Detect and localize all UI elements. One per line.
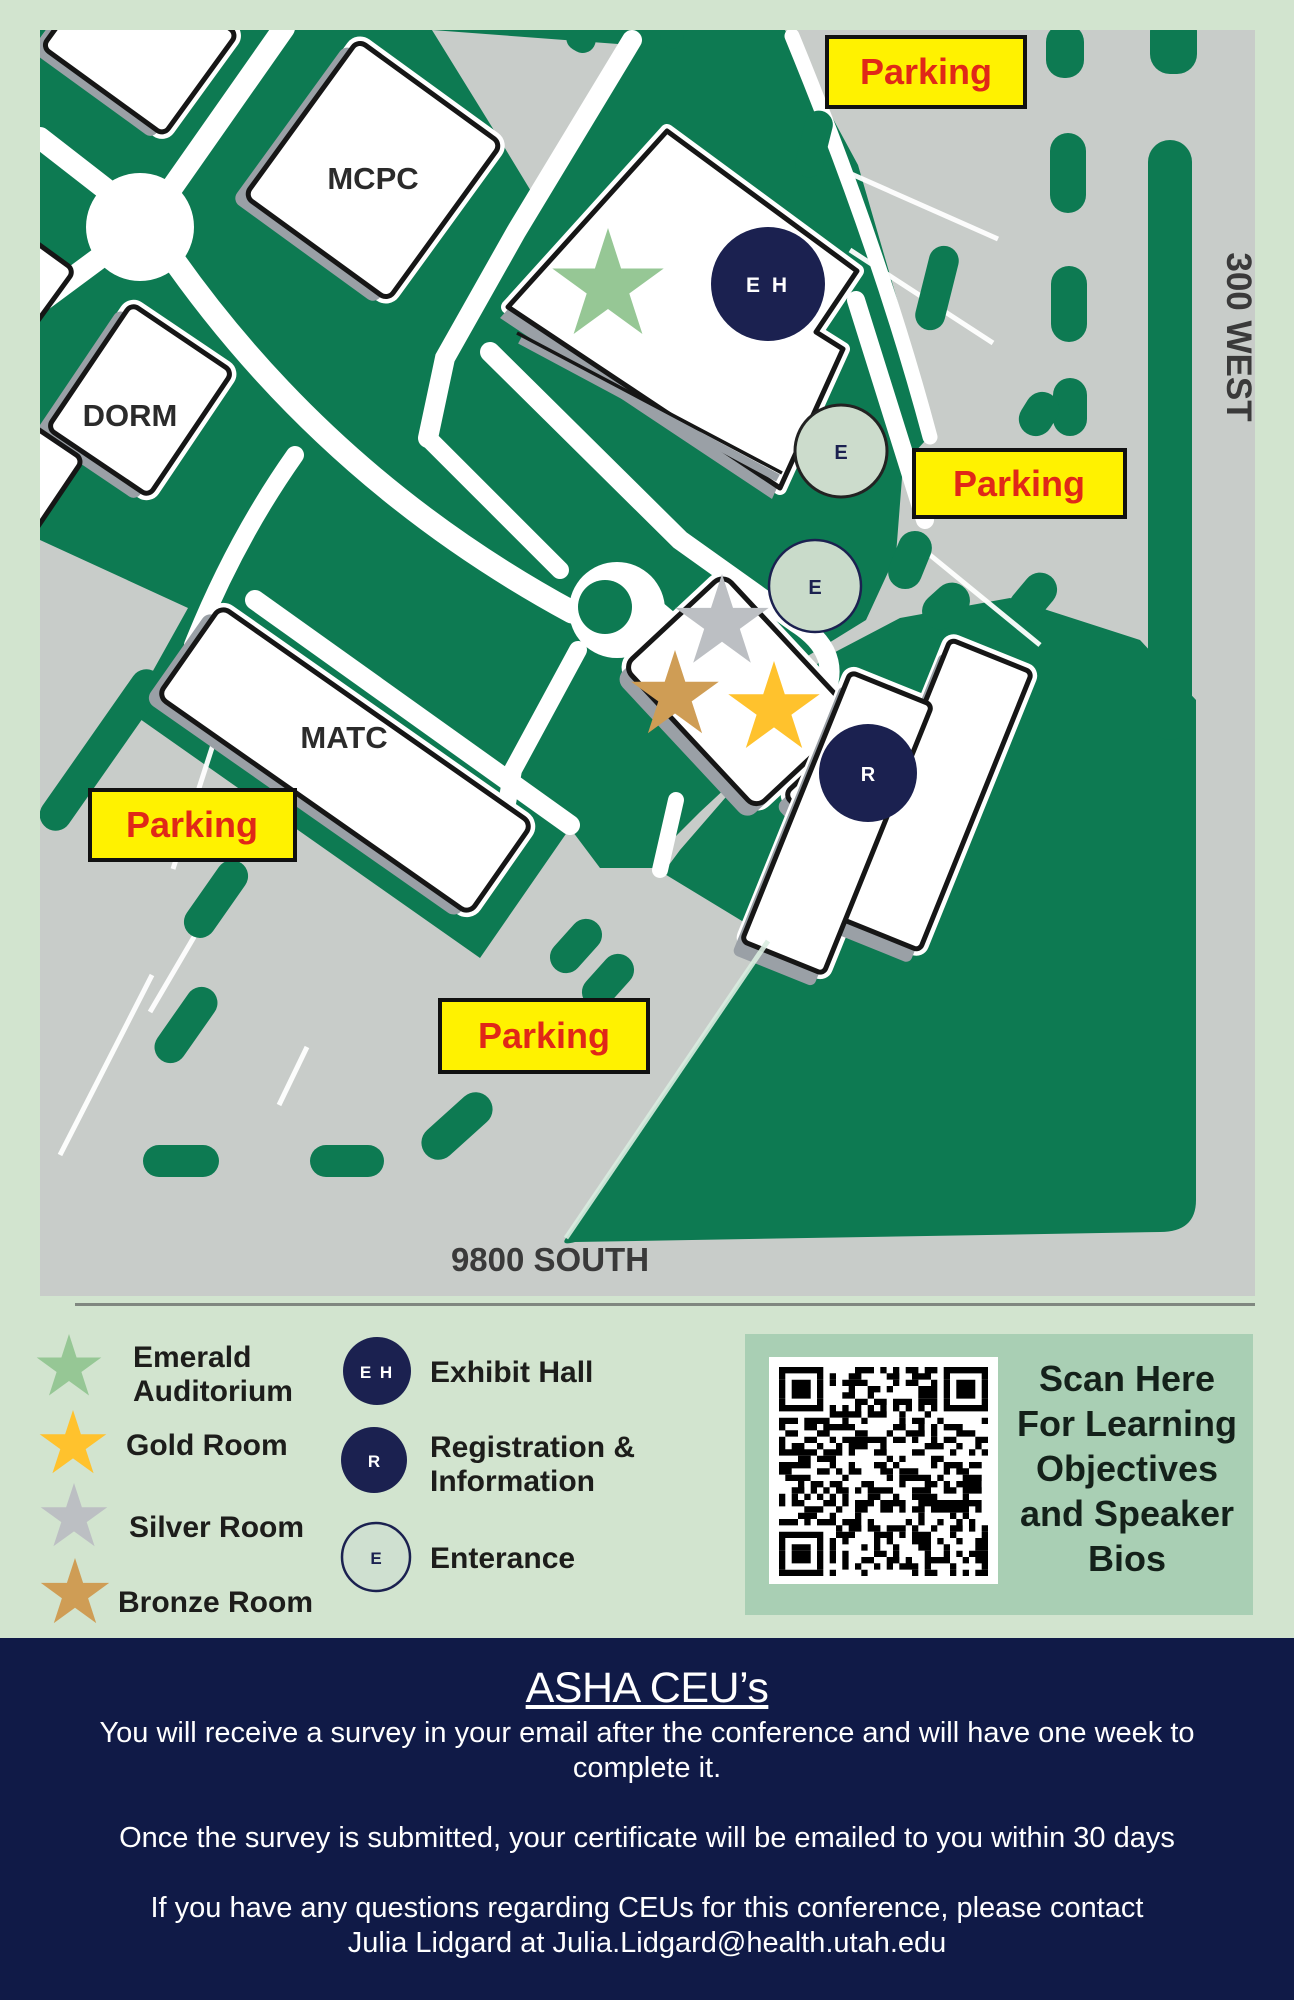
svg-text:E H: E H [746,274,790,297]
svg-text:E: E [808,577,821,599]
svg-text:9800 SOUTH: 9800 SOUTH [451,1241,649,1278]
svg-text:E: E [370,1549,381,1568]
svg-text:E H: E H [360,1363,394,1382]
svg-text:R: R [368,1452,380,1471]
svg-text:Parking: Parking [126,804,258,845]
svg-text:R: R [861,764,876,786]
svg-text:300 WEST: 300 WEST [1219,252,1258,421]
svg-text:Parking: Parking [860,51,992,92]
svg-text:E: E [834,442,847,464]
svg-text:DORM: DORM [83,398,178,433]
svg-text:MCPC: MCPC [327,161,418,196]
svg-text:MATC: MATC [300,720,387,755]
svg-text:Parking: Parking [478,1015,610,1056]
svg-text:Parking: Parking [953,463,1085,504]
